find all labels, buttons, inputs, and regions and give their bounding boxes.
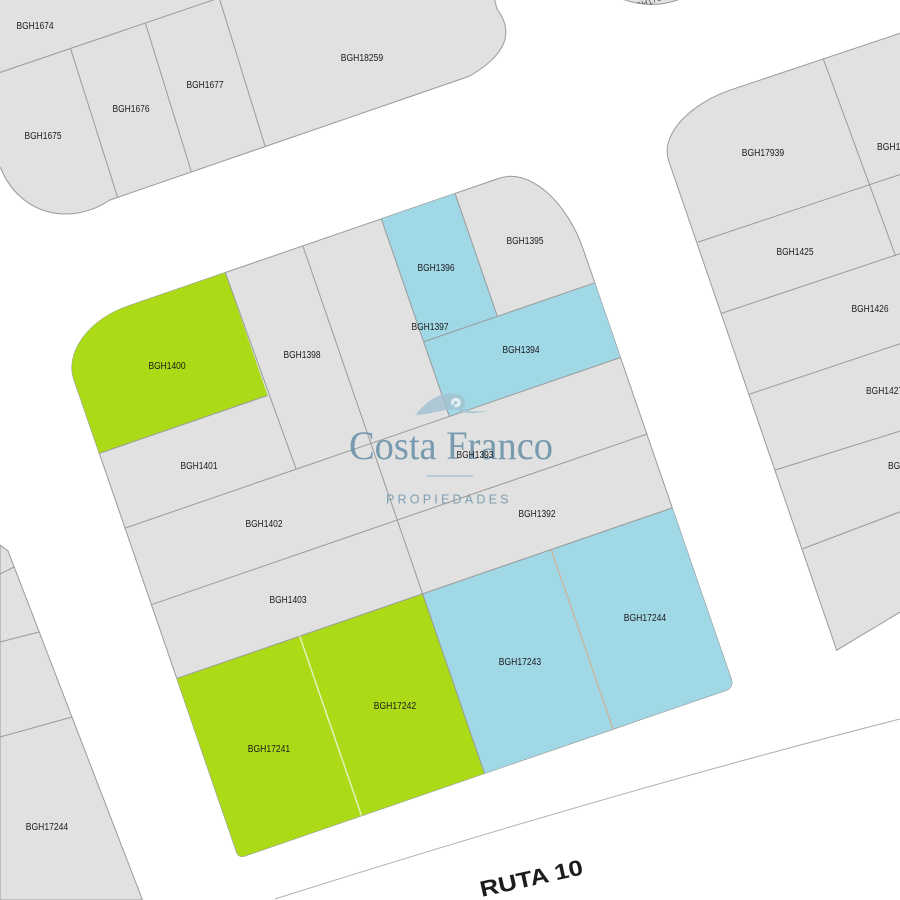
svg-text:BGH1426: BGH1426: [851, 304, 888, 315]
svg-text:BGH1676: BGH1676: [112, 104, 149, 115]
svg-text:BGH1402: BGH1402: [245, 519, 282, 530]
svg-text:BGH17940: BGH17940: [877, 142, 900, 153]
svg-text:BGH17244: BGH17244: [624, 613, 667, 624]
svg-text:BGH1677: BGH1677: [186, 80, 223, 91]
svg-text:BGH1397: BGH1397: [411, 322, 448, 333]
svg-text:BGH1392: BGH1392: [518, 509, 555, 520]
svg-text:BGH1675: BGH1675: [24, 131, 61, 142]
svg-text:BGH1428: BGH1428: [888, 461, 900, 472]
svg-text:BGH18259: BGH18259: [341, 53, 384, 64]
svg-text:BGH1398: BGH1398: [283, 350, 320, 361]
svg-text:BGH17241: BGH17241: [248, 744, 291, 755]
svg-text:PROPIEDADES: PROPIEDADES: [386, 493, 512, 507]
svg-text:BGH1400: BGH1400: [148, 361, 185, 372]
svg-text:BGH1425: BGH1425: [776, 247, 813, 258]
svg-text:BGH17242: BGH17242: [374, 701, 417, 712]
svg-text:BGH1393: BGH1393: [456, 450, 493, 461]
svg-text:BGH17939: BGH17939: [742, 148, 785, 159]
svg-text:Costa Franco: Costa Franco: [349, 423, 553, 468]
svg-text:BGH1401: BGH1401: [180, 461, 217, 472]
svg-text:BGH1674: BGH1674: [16, 21, 53, 32]
svg-text:BGH1396: BGH1396: [417, 263, 454, 274]
svg-text:BGH17243: BGH17243: [499, 657, 542, 668]
svg-text:BGH17244: BGH17244: [26, 822, 69, 833]
svg-text:BGH1403: BGH1403: [269, 595, 306, 606]
svg-text:BGH1394: BGH1394: [502, 345, 539, 356]
svg-text:BGH1427: BGH1427: [866, 386, 900, 397]
svg-text:BGH1395: BGH1395: [506, 236, 543, 247]
